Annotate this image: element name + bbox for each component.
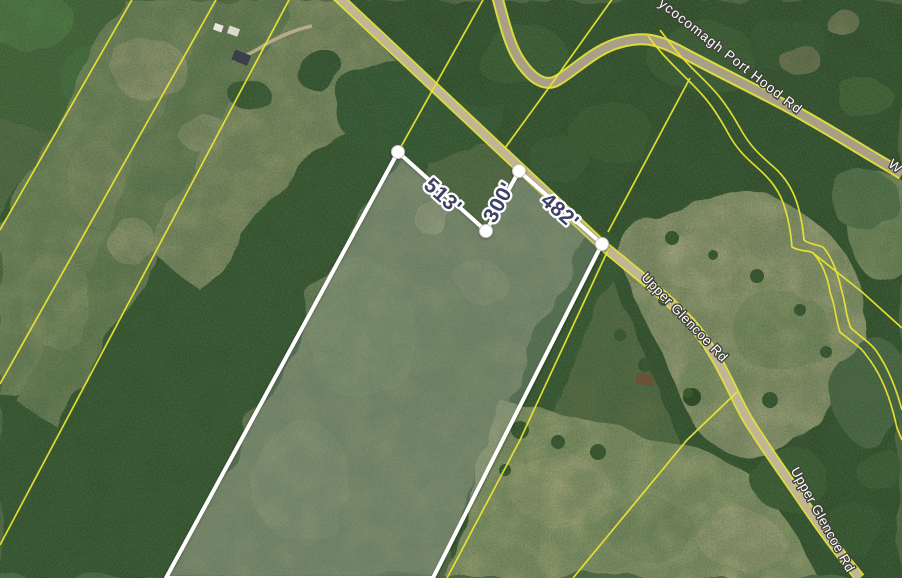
parcel-vertex[interactable] <box>596 238 609 251</box>
parcel-vertex[interactable] <box>513 165 526 178</box>
parcel-vertex[interactable] <box>392 146 405 159</box>
satellite-map[interactable]: 513' 300' 482' ycocomagh Port Hood Rd Up… <box>0 0 902 578</box>
map-viewport[interactable]: 513' 300' 482' ycocomagh Port Hood Rd Up… <box>0 0 902 578</box>
parcel-vertex[interactable] <box>480 225 493 238</box>
